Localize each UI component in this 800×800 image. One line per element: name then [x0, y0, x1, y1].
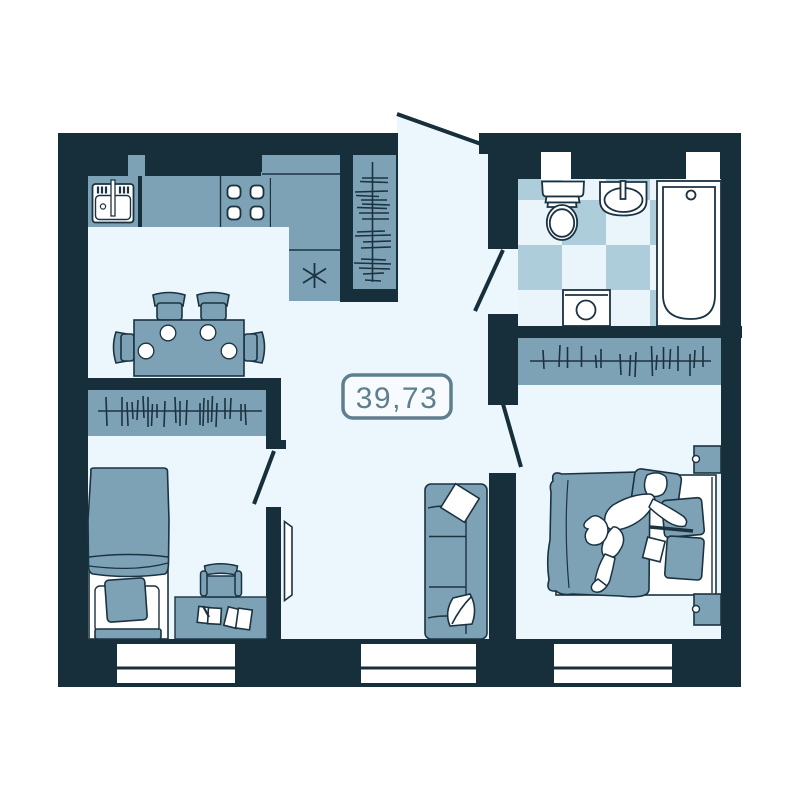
svg-text:39,73: 39,73 — [356, 382, 439, 415]
